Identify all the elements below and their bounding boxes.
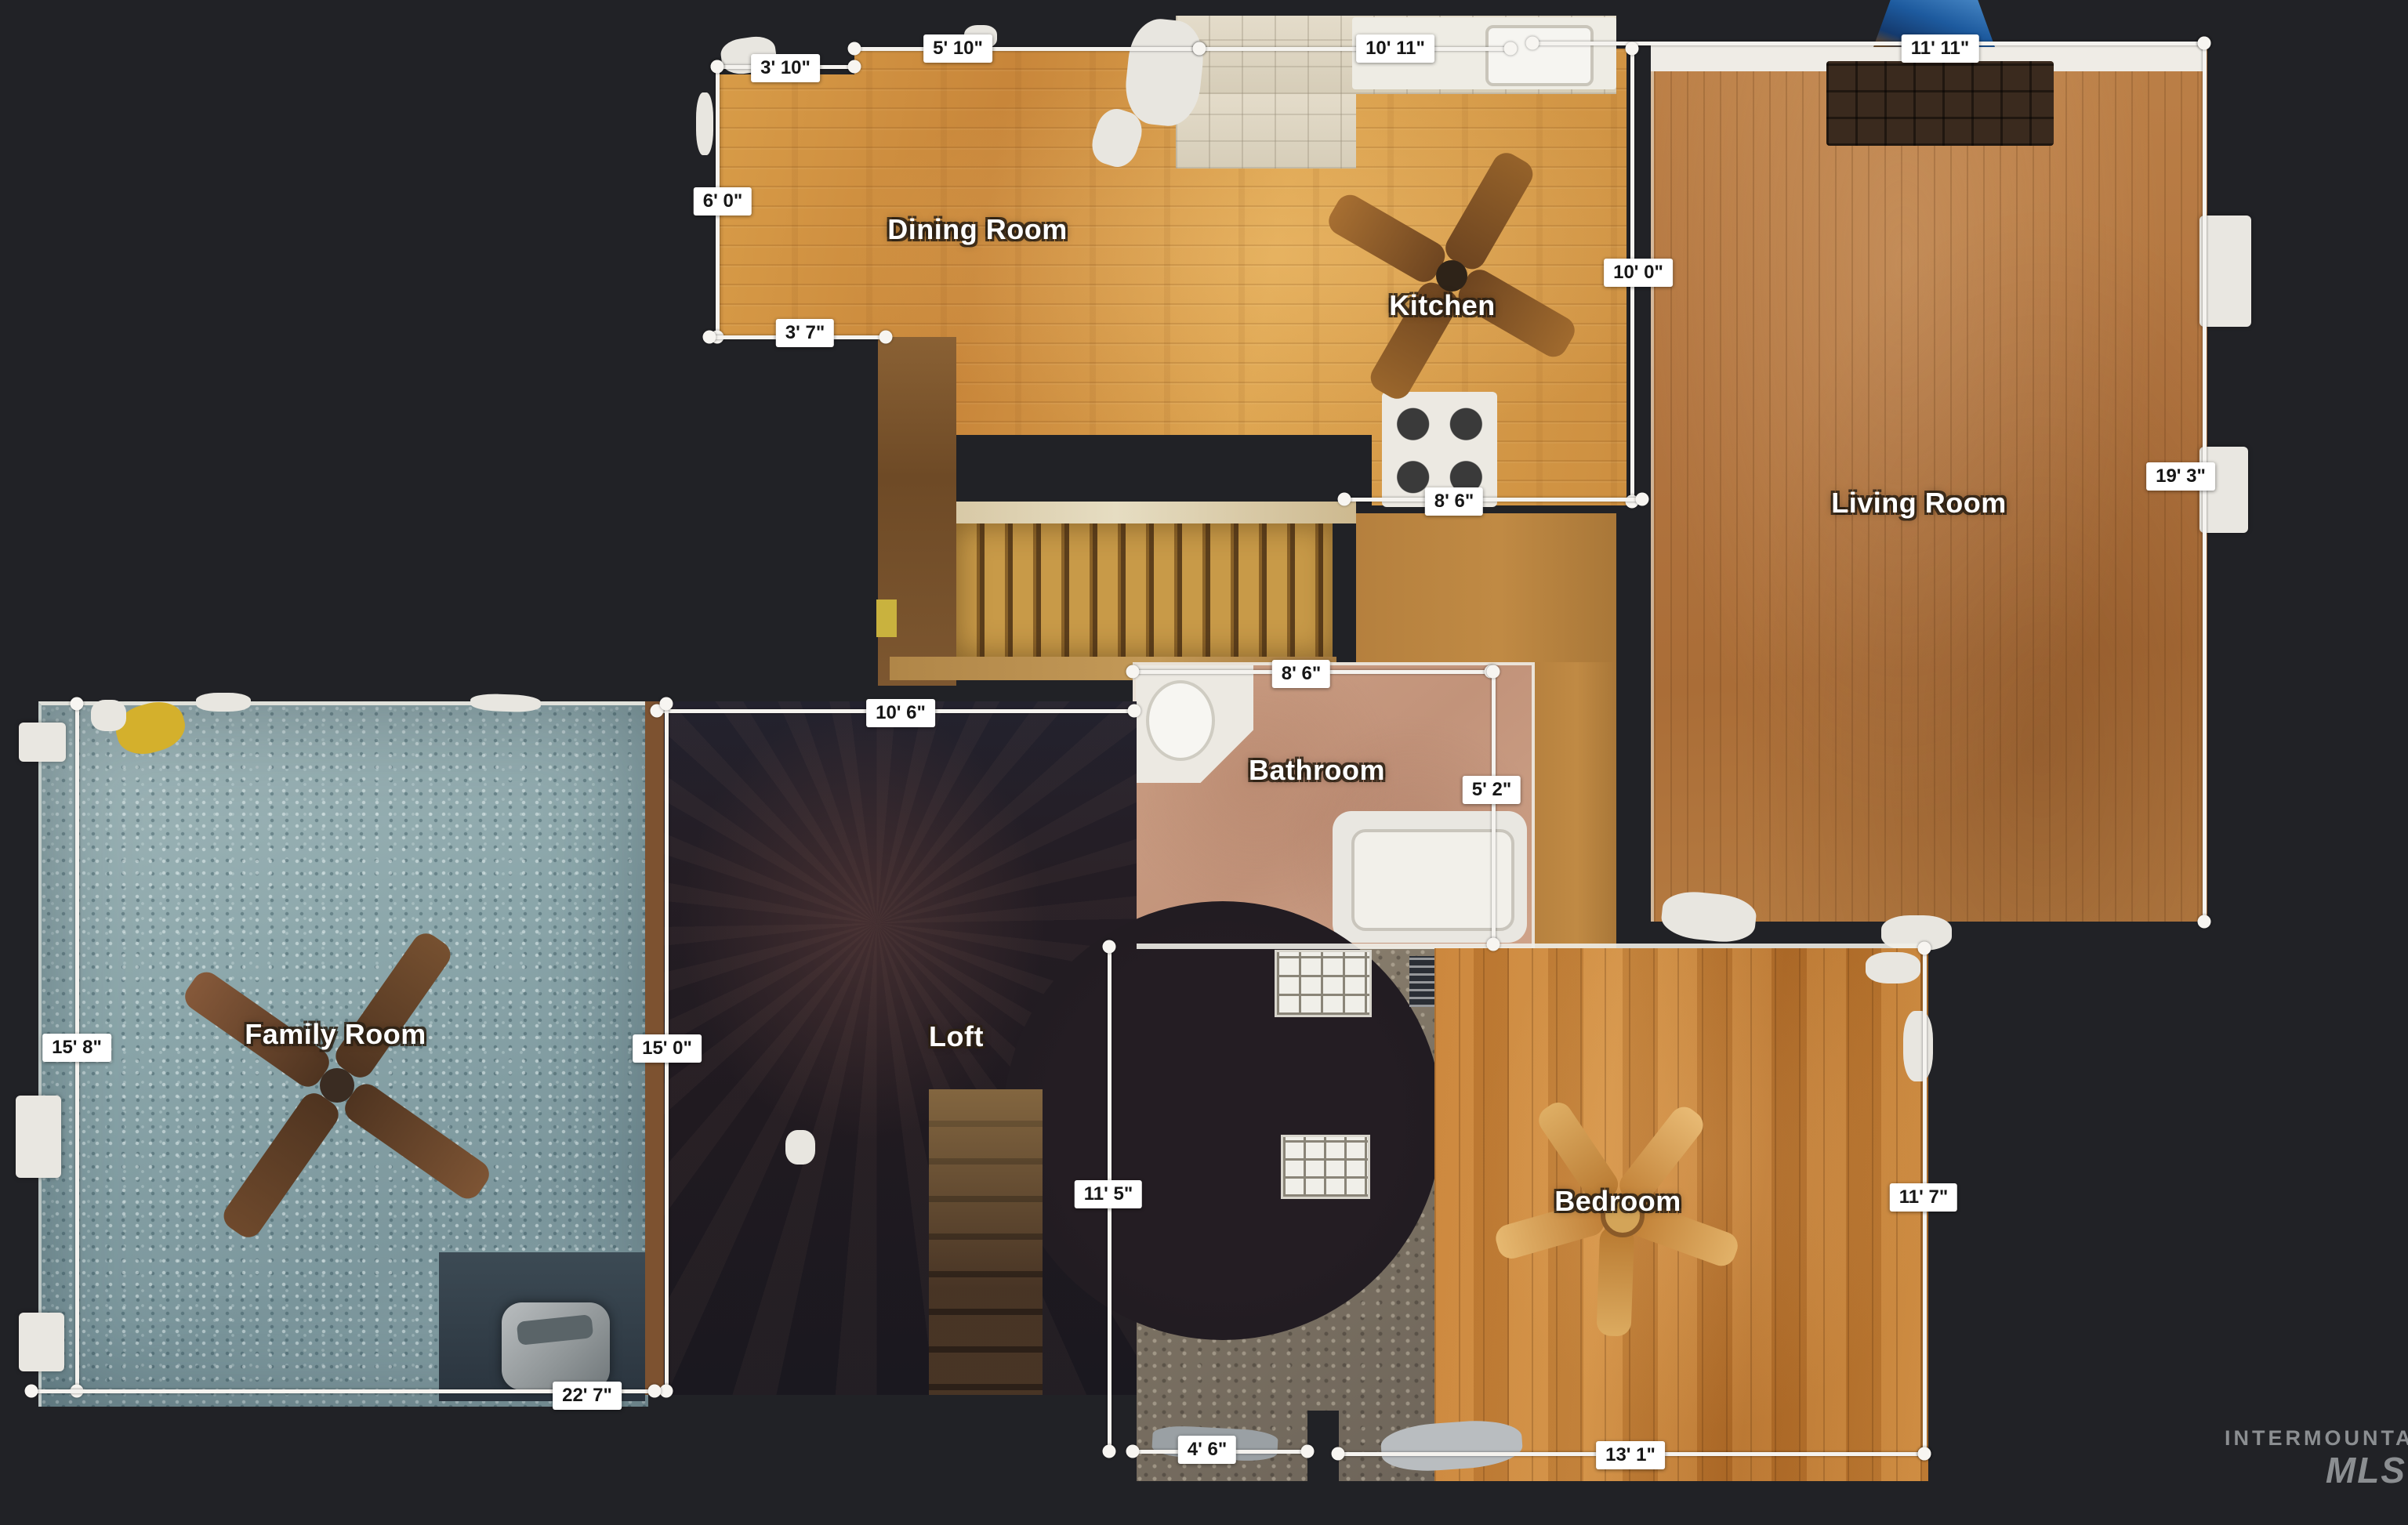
dimension-endpoint	[711, 60, 724, 74]
dimension-label: 8' 6"	[1425, 487, 1483, 516]
dimension-line	[1492, 672, 1496, 944]
dimension-endpoint	[71, 697, 84, 711]
dimension-label: 13' 1"	[1596, 1441, 1665, 1469]
dimension-label: 19' 3"	[2146, 462, 2215, 491]
dimension-label: 11' 5"	[1075, 1180, 1142, 1208]
dimension-endpoint	[1103, 1445, 1116, 1458]
dimension-endpoint	[660, 1385, 673, 1398]
dimension-endpoint	[879, 331, 893, 344]
floor-plan-canvas: 3' 10"5' 10"10' 11"11' 11"6' 0"3' 7"10' …	[0, 0, 2408, 1525]
dimension-label: 10' 6"	[866, 699, 935, 727]
room-label-family-room: Family Room	[245, 1018, 426, 1051]
dimension-label: 5' 2"	[1463, 776, 1521, 804]
dimension-endpoint	[1636, 493, 1649, 506]
dimension-endpoint	[848, 42, 861, 56]
dimension-endpoint	[648, 1385, 662, 1398]
dimension-endpoint	[2198, 37, 2211, 50]
dimension-endpoint	[1626, 42, 1639, 56]
dimension-label: 8' 6"	[1272, 660, 1330, 688]
watermark-text: INTERMOUNTAIN	[2225, 1426, 2408, 1451]
dimension-label: 10' 0"	[1604, 259, 1673, 287]
dimension-label: 10' 11"	[1356, 34, 1434, 63]
dimension-line	[854, 47, 1199, 51]
dimension-endpoint	[1918, 1447, 1931, 1461]
dimension-endpoint	[2198, 915, 2211, 929]
dimension-endpoint	[1128, 705, 1141, 718]
dimension-label: 11' 7"	[1890, 1183, 1957, 1212]
dimension-label: 22' 7"	[553, 1382, 622, 1410]
room-label-kitchen: Kitchen	[1389, 289, 1496, 322]
dimension-endpoint	[1487, 665, 1500, 679]
dimension-label: 15' 0"	[633, 1034, 702, 1063]
dimension-endpoint	[1526, 37, 1539, 50]
room-label-loft: Loft	[929, 1020, 984, 1053]
dimension-label: 5' 10"	[923, 34, 992, 63]
dimension-endpoint	[1103, 940, 1116, 954]
dimension-endpoint	[1487, 938, 1500, 951]
watermark-logo-text: MLS	[2225, 1449, 2406, 1491]
dimension-line	[1199, 47, 1510, 51]
room-label-bathroom: Bathroom	[1249, 754, 1385, 787]
dimension-endpoint	[1126, 1445, 1140, 1458]
dimension-endpoint	[1301, 1445, 1315, 1458]
dimension-endpoint	[1193, 42, 1206, 56]
room-label-dining-room: Dining Room	[887, 213, 1067, 246]
dimension-endpoint	[660, 697, 673, 711]
dimension-endpoint	[1338, 493, 1351, 506]
dimension-endpoint	[25, 1385, 38, 1398]
dimension-label: 4' 6"	[1178, 1436, 1236, 1464]
dimension-label: 15' 8"	[42, 1034, 111, 1062]
room-label-bedroom: Bedroom	[1554, 1185, 1681, 1218]
dimension-endpoint	[1126, 665, 1140, 679]
annotations-layer: 3' 10"5' 10"10' 11"11' 11"6' 0"3' 7"10' …	[0, 0, 2408, 1525]
dimension-label: 6' 0"	[694, 187, 752, 216]
room-label-living-room: Living Room	[1831, 487, 2007, 520]
dimension-label: 3' 10"	[751, 54, 820, 82]
dimension-endpoint	[1918, 942, 1931, 955]
dimension-endpoint	[848, 60, 861, 74]
dimension-endpoint	[703, 331, 716, 344]
dimension-label: 3' 7"	[776, 319, 834, 347]
dimension-endpoint	[1504, 42, 1518, 56]
dimension-line	[1344, 498, 1642, 502]
dimension-endpoint	[1332, 1447, 1345, 1461]
mls-watermark: INTERMOUNTAIN MLS	[2225, 1426, 2408, 1491]
dimension-label: 11' 11"	[1902, 34, 1979, 63]
